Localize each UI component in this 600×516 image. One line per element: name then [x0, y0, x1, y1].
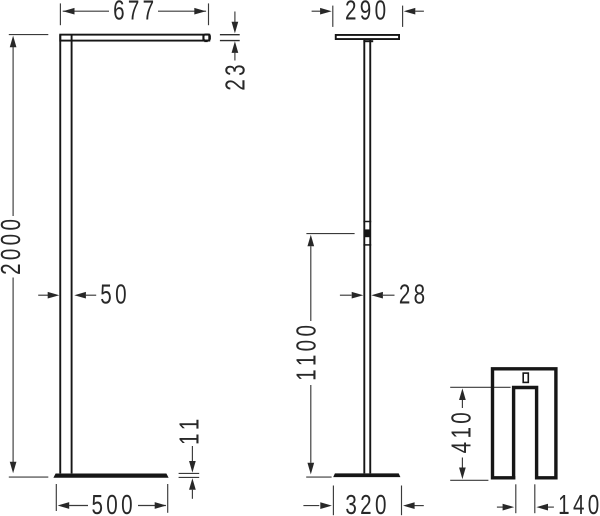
svg-text:2: 2: [360, 490, 371, 516]
svg-text:7: 7: [128, 0, 139, 26]
svg-text:4: 4: [573, 490, 584, 516]
svg-text:1: 1: [175, 434, 206, 445]
svg-text:0: 0: [292, 325, 323, 336]
svg-text:0: 0: [0, 219, 27, 230]
svg-text:0: 0: [588, 490, 599, 516]
svg-text:1: 1: [558, 490, 569, 516]
svg-text:0: 0: [0, 234, 27, 245]
svg-text:9: 9: [360, 0, 371, 26]
svg-text:4: 4: [447, 442, 478, 453]
svg-text:7: 7: [143, 0, 154, 26]
svg-text:0: 0: [292, 340, 323, 351]
svg-text:5: 5: [100, 280, 111, 311]
svg-text:0: 0: [0, 249, 27, 260]
svg-text:2: 2: [399, 280, 410, 311]
svg-text:0: 0: [375, 0, 386, 26]
svg-text:3: 3: [221, 64, 252, 75]
svg-text:2: 2: [221, 79, 252, 90]
svg-text:1: 1: [175, 419, 206, 430]
svg-text:2: 2: [0, 263, 27, 274]
svg-text:0: 0: [375, 490, 386, 516]
svg-text:0: 0: [121, 490, 132, 516]
svg-text:5: 5: [91, 490, 102, 516]
svg-text:6: 6: [113, 0, 124, 26]
svg-text:1: 1: [447, 427, 478, 438]
svg-text:2: 2: [345, 0, 356, 26]
svg-text:0: 0: [115, 280, 126, 311]
svg-text:3: 3: [345, 490, 356, 516]
svg-text:1: 1: [292, 355, 323, 366]
svg-text:0: 0: [106, 490, 117, 516]
svg-text:0: 0: [447, 412, 478, 423]
svg-text:1: 1: [292, 369, 323, 380]
svg-text:8: 8: [414, 280, 425, 311]
